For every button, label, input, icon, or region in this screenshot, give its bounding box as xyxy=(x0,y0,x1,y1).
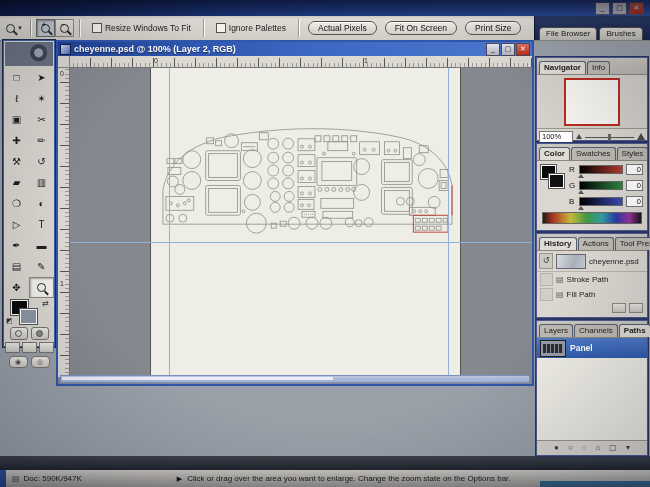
tool-eraser[interactable]: ▰ xyxy=(4,172,29,193)
new-snapshot-button[interactable] xyxy=(612,303,626,313)
swap-colors-icon[interactable]: ⇄ xyxy=(42,299,49,308)
channel-label: G xyxy=(569,181,576,190)
red-value[interactable]: 0 xyxy=(626,164,643,175)
checkbox-box xyxy=(216,23,226,33)
new-path-icon[interactable]: ▢ xyxy=(609,443,617,453)
zoom-tool-icon xyxy=(6,24,15,33)
ruler-top[interactable] xyxy=(69,56,532,68)
tool-notes[interactable]: ▤ xyxy=(4,256,29,277)
history-brush-source-icon[interactable]: ↺ xyxy=(539,253,553,269)
taskbar-edge xyxy=(540,481,650,487)
tool-brush[interactable]: ✏ xyxy=(29,130,54,151)
color-palette-swatches[interactable] xyxy=(541,165,565,191)
quick-mask-button[interactable] xyxy=(31,327,49,340)
tab-color[interactable]: Color xyxy=(539,147,570,160)
tab-file-browser[interactable]: File Browser xyxy=(539,27,597,40)
document-icon: ▤ xyxy=(12,474,20,483)
paths-empty-area xyxy=(537,358,647,440)
toolbox: □ ➤ ℓ ✶ ▣ ✂ ✚ ✏ ⚒ ↺ ▰ ▥ ❍ ◐ ▷ T ✒ ▬ ▤ ✎ … xyxy=(3,40,55,347)
zoom-in-button[interactable]: + xyxy=(36,19,55,37)
tab-info[interactable]: Info xyxy=(587,61,610,74)
document-content: 0 1 0 1 xyxy=(58,56,532,384)
color-swatch-area: ⇄ ◩ xyxy=(4,298,54,326)
tab-paths[interactable]: Paths xyxy=(619,324,650,337)
zoom-in-mountain-icon[interactable] xyxy=(637,133,645,140)
make-work-path-icon[interactable]: ⌂ xyxy=(596,443,601,453)
standard-screen-button[interactable] xyxy=(5,342,20,353)
fullscreen-menubar-button[interactable] xyxy=(22,342,37,353)
history-step[interactable]: ▤ Stroke Path xyxy=(537,272,647,287)
standard-mode-button[interactable] xyxy=(10,327,28,340)
guide-vertical[interactable] xyxy=(448,68,449,377)
ruler-number: 1 xyxy=(364,57,368,64)
background-color-swatch[interactable] xyxy=(20,309,37,324)
document-size-readout[interactable]: Doc: 590K/947K xyxy=(24,474,82,483)
adobe-logo[interactable] xyxy=(5,42,53,66)
snapshot-label: cheyenne.psd xyxy=(589,257,639,266)
canvas[interactable] xyxy=(150,67,461,378)
history-step[interactable]: ▤ Fill Path xyxy=(537,287,647,302)
tool-crop[interactable]: ▣ xyxy=(4,109,29,130)
guide-horizontal[interactable] xyxy=(69,242,532,243)
tool-type[interactable]: T xyxy=(29,214,54,235)
doc-minimize-button[interactable]: _ xyxy=(486,43,500,56)
horizontal-scrollbar[interactable] xyxy=(60,375,530,383)
tool-healing-brush[interactable]: ✚ xyxy=(4,130,29,151)
tab-tool-presets[interactable]: Tool Presets xyxy=(615,237,650,250)
history-palette: History Actions Tool Presets ↺ cheyenne.… xyxy=(536,233,648,318)
tool-dodge[interactable]: ◐ xyxy=(29,193,54,214)
palette-well: File Browser Brushes xyxy=(534,16,650,40)
tool-clone-stamp[interactable]: ⚒ xyxy=(4,151,29,172)
paths-palette: Layers Channels Paths Panel ● ○ ◌ ⌂ ▢ ▾ xyxy=(536,320,648,456)
tab-swatches[interactable]: Swatches xyxy=(571,147,616,160)
document-icon: ▤ xyxy=(556,275,564,284)
green-value[interactable]: 0 xyxy=(626,180,643,191)
document-icon xyxy=(60,44,71,55)
color-palette: Color Swatches Styles R 0 G 0 B 0 xyxy=(536,143,648,231)
window-resize-grip[interactable] xyxy=(0,470,6,487)
separator xyxy=(30,19,31,37)
fit-on-screen-button[interactable]: Fit On Screen xyxy=(385,21,457,35)
separator xyxy=(203,19,204,37)
photoshop-screen: _ ▢ ✕ ▼ + − Resize Windows To Fit Ignore… xyxy=(0,0,650,487)
zoom-out-icon: − xyxy=(60,24,69,33)
blue-slider[interactable] xyxy=(579,197,623,206)
navigator-zoom-field[interactable]: 100% xyxy=(539,131,573,143)
blue-value[interactable]: 0 xyxy=(626,196,643,207)
doc-maximize-button[interactable]: ▢ xyxy=(501,43,515,56)
ruler-left[interactable] xyxy=(58,67,70,377)
checkbox-box xyxy=(92,23,102,33)
background-color-swatch[interactable] xyxy=(549,174,564,188)
navigator-palette: Navigator Info 100% xyxy=(536,57,648,141)
fill-path-icon[interactable]: ● xyxy=(554,443,559,453)
ruler-number: 1 xyxy=(60,280,64,287)
document-icon: ▤ xyxy=(556,290,564,299)
red-slider[interactable] xyxy=(579,165,623,174)
tab-brushes[interactable]: Brushes xyxy=(599,27,642,40)
history-step-label: Fill Path xyxy=(567,290,596,299)
slider-thumb[interactable] xyxy=(608,134,611,141)
separator xyxy=(298,19,299,37)
snapshot-thumbnail xyxy=(556,254,586,269)
tool-move[interactable]: ➤ xyxy=(29,67,54,88)
delete-path-icon[interactable]: ▾ xyxy=(626,443,630,453)
tool-hand[interactable]: ✥ xyxy=(4,277,29,298)
chevron-down-icon: ▼ xyxy=(17,25,23,31)
fullscreen-button[interactable] xyxy=(39,342,54,353)
tool-magic-wand[interactable]: ✶ xyxy=(29,88,54,109)
channel-label: B xyxy=(569,197,576,206)
navigator-preview[interactable] xyxy=(537,75,647,128)
tool-gradient[interactable]: ▥ xyxy=(29,172,54,193)
ruler-corner[interactable] xyxy=(58,56,70,68)
scrollbar-thumb[interactable] xyxy=(62,377,333,380)
ruler-number: 0 xyxy=(60,70,64,77)
document-window: cheyenne.psd @ 100% (Layer 2, RGB) _ ▢ ✕… xyxy=(56,40,534,386)
path-item-selected[interactable]: Panel xyxy=(537,338,647,358)
zoom-in-icon: + xyxy=(41,24,50,33)
path-label: Panel xyxy=(570,343,593,353)
zoom-out-button[interactable]: − xyxy=(55,19,74,37)
ignore-palettes-checkbox[interactable]: Ignore Palettes xyxy=(216,23,286,33)
tool-blur[interactable]: ❍ xyxy=(4,193,29,214)
history-step-well[interactable] xyxy=(540,288,553,301)
magnifier-icon xyxy=(37,283,46,292)
tool-eyedropper[interactable]: ✎ xyxy=(29,256,54,277)
checkbox-label: Resize Windows To Fit xyxy=(105,23,191,33)
history-step-well[interactable] xyxy=(540,273,553,286)
channel-label: R xyxy=(569,165,576,174)
navigator-view-box[interactable] xyxy=(564,78,620,126)
window-bottom-edge xyxy=(0,456,650,470)
tab-channels[interactable]: Channels xyxy=(574,324,618,337)
hint-arrow-icon: ▶ xyxy=(177,475,182,483)
tool-pen[interactable]: ✒ xyxy=(4,235,29,256)
stroke-path-icon[interactable]: ○ xyxy=(568,443,573,453)
app-minimize-button[interactable]: _ xyxy=(595,2,610,15)
jump-to-imageready-button[interactable]: ◉ xyxy=(9,356,28,368)
history-step-label: Stroke Path xyxy=(567,275,609,284)
checkbox-label: Ignore Palettes xyxy=(229,23,286,33)
tab-history[interactable]: History xyxy=(539,237,577,250)
tab-actions[interactable]: Actions xyxy=(578,237,614,250)
actual-pixels-button[interactable]: Actual Pixels xyxy=(308,21,377,35)
green-slider[interactable] xyxy=(579,181,623,190)
document-title: cheyenne.psd @ 100% (Layer 2, RGB) xyxy=(74,44,236,54)
print-size-button[interactable]: Print Size xyxy=(465,21,521,35)
doc-close-button[interactable]: ✕ xyxy=(516,43,530,56)
navigator-zoom-slider[interactable] xyxy=(585,133,634,141)
color-spectrum-ramp[interactable] xyxy=(542,212,642,224)
app-titlebar: _ ▢ ✕ xyxy=(0,0,650,16)
tool-slice[interactable]: ✂ xyxy=(29,109,54,130)
panel-drawing xyxy=(159,120,456,239)
tool-preset-picker[interactable]: ▼ xyxy=(0,24,25,33)
zoom-out-mountain-icon[interactable] xyxy=(576,134,582,139)
separator xyxy=(79,19,80,37)
tool-rectangular-marquee[interactable]: □ xyxy=(4,67,29,88)
default-colors-icon[interactable]: ◩ xyxy=(6,317,13,325)
guide-vertical[interactable] xyxy=(169,68,170,377)
path-thumbnail xyxy=(540,340,566,357)
app-maximize-button[interactable]: ▢ xyxy=(612,2,627,15)
load-selection-icon[interactable]: ◌ xyxy=(582,443,587,453)
tab-navigator[interactable]: Navigator xyxy=(539,61,586,74)
tab-layers[interactable]: Layers xyxy=(539,324,573,337)
tool-history-brush[interactable]: ↺ xyxy=(29,151,54,172)
document-titlebar[interactable]: cheyenne.psd @ 100% (Layer 2, RGB) _ ▢ ✕ xyxy=(58,42,532,56)
tab-styles[interactable]: Styles xyxy=(617,147,649,160)
tool-shape[interactable]: ▬ xyxy=(29,235,54,256)
jump-to-imageready-button2[interactable]: ◎ xyxy=(31,356,50,368)
status-hint-text: Click or drag over the area you want to … xyxy=(187,474,510,483)
tool-zoom[interactable] xyxy=(29,277,54,298)
tool-path-selection[interactable]: ▷ xyxy=(4,214,29,235)
resize-windows-checkbox[interactable]: Resize Windows To Fit xyxy=(92,23,191,33)
history-snapshot-row[interactable]: ↺ cheyenne.psd xyxy=(537,251,647,272)
delete-state-button[interactable] xyxy=(629,303,643,313)
ruler-number: 0 xyxy=(154,57,158,64)
tool-lasso[interactable]: ℓ xyxy=(4,88,29,109)
app-close-button[interactable]: ✕ xyxy=(629,2,644,15)
